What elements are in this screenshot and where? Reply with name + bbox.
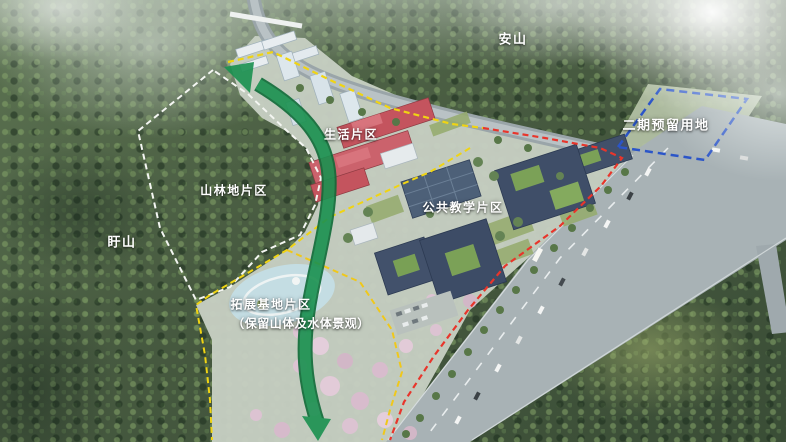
label-phase2-reserved: 二期预留用地 (622, 115, 709, 134)
label-mountain-xushan: 盱山 (107, 232, 136, 251)
label-base-zone-note: （保留山体及水体景观） (232, 315, 370, 332)
label-base-zone: 拓展基地片区 (230, 296, 311, 313)
label-teaching-zone: 公共教学片区 (422, 199, 503, 216)
label-mountain-anshan: 安山 (498, 29, 527, 48)
side-road (756, 244, 786, 334)
label-living-zone: 生活片区 (324, 126, 378, 143)
label-forest-zone: 山林地片区 (200, 182, 268, 199)
masterplan-canvas: 安山 二期预留用地 生活片区 山林地片区 盱山 公共教学片区 拓展基地片区 （保… (0, 0, 786, 442)
masterplan-scene (0, 0, 786, 442)
